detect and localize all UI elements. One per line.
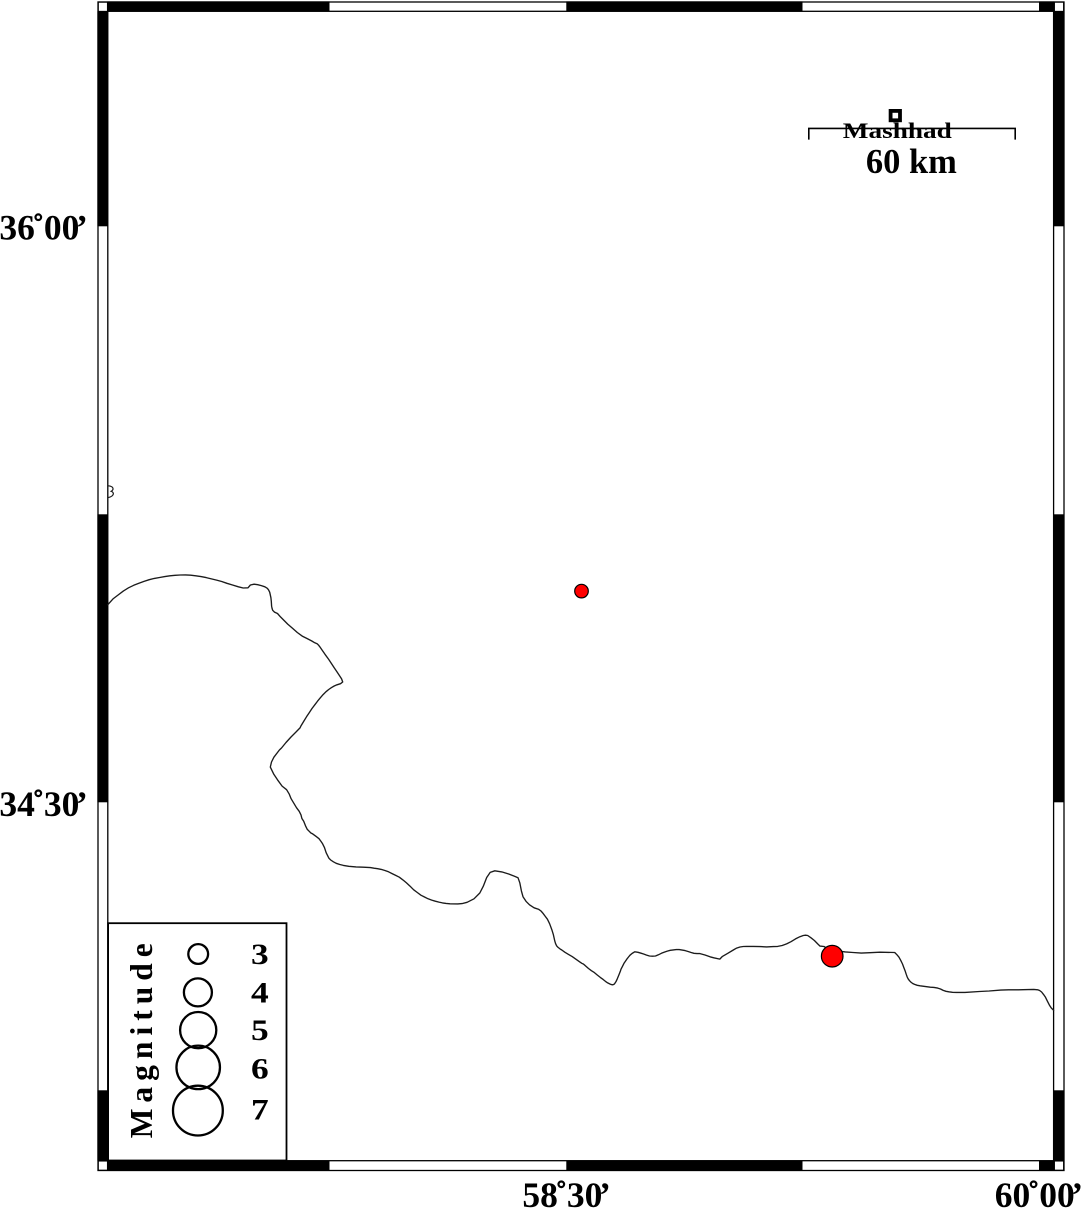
svg-text:60 km: 60 km — [866, 143, 957, 181]
svg-text:3600’: 3600’ — [0, 208, 88, 248]
svg-text:4: 4 — [251, 977, 269, 1010]
svg-text:3430’: 3430’ — [0, 784, 88, 824]
svg-text:3: 3 — [251, 938, 269, 971]
svg-text:Mashhad: Mashhad — [843, 119, 952, 143]
svg-text:6: 6 — [251, 1053, 269, 1086]
svg-text:5: 5 — [251, 1014, 269, 1047]
svg-text:7: 7 — [251, 1094, 269, 1127]
svg-text:Magnitude: Magnitude — [124, 937, 159, 1138]
svg-text:5830’: 5830’ — [522, 1175, 610, 1209]
